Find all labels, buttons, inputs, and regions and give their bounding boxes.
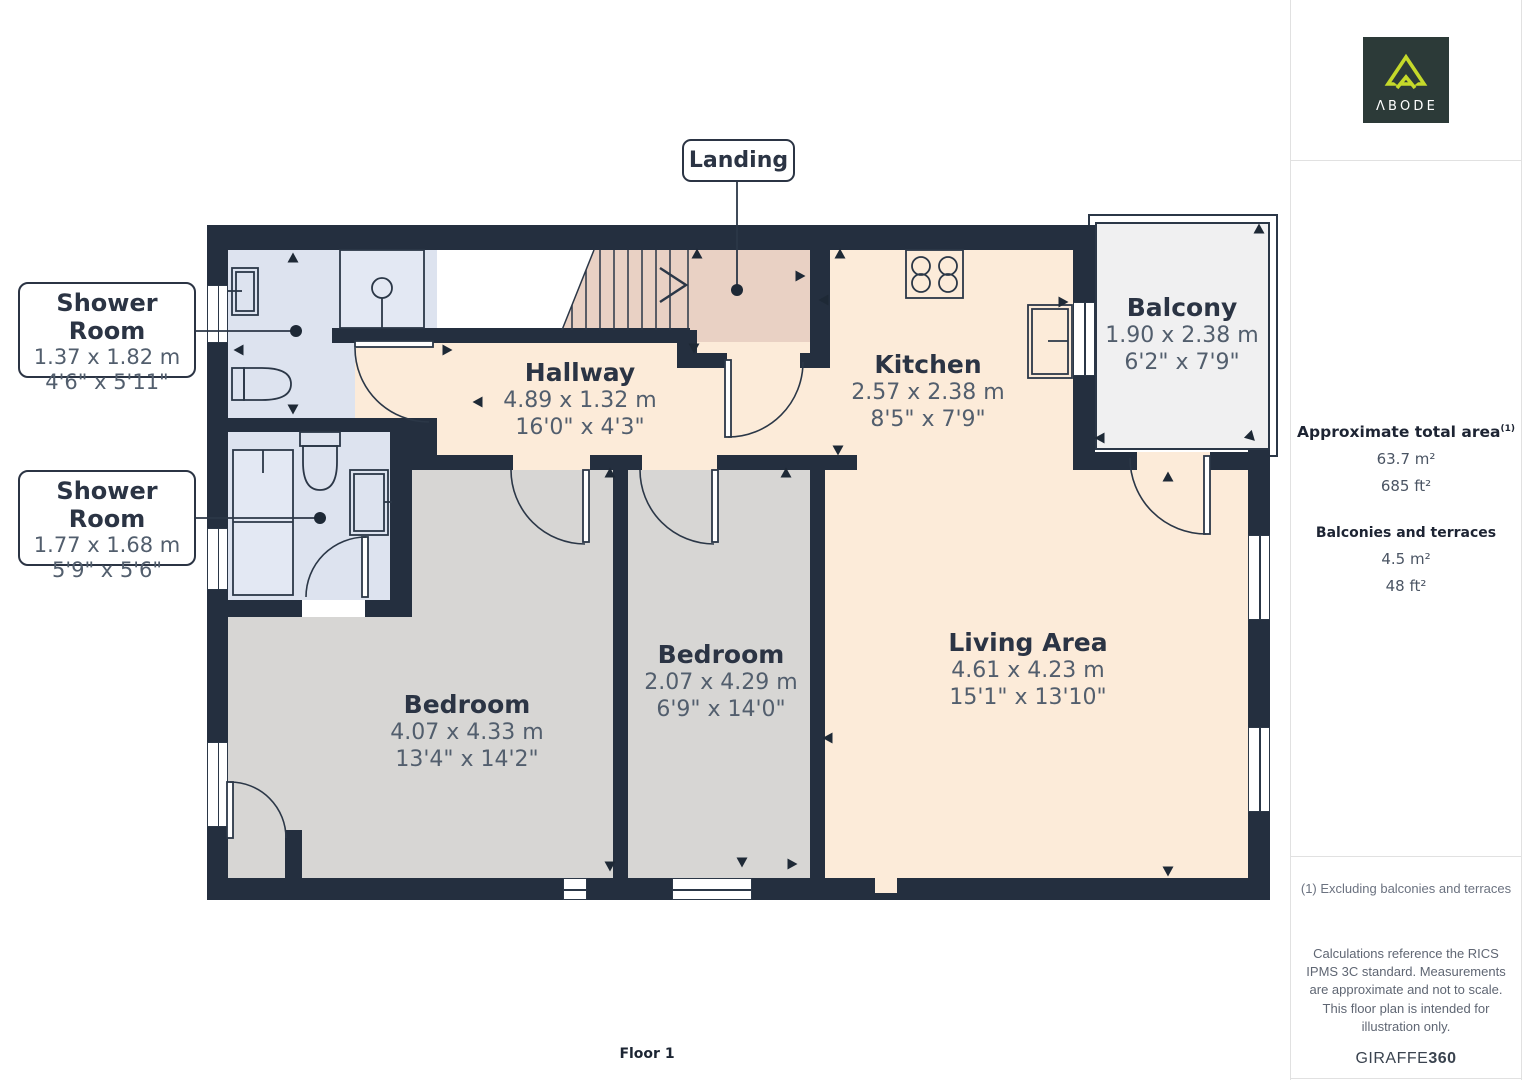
label-bedroom-2: Bedroom 2.07 x 4.29 m 6'9" x 14'0" xyxy=(644,640,797,724)
toilet-icon xyxy=(303,446,337,490)
logo-section: ΛBODE xyxy=(1291,0,1521,161)
room-size-metric: 2.07 x 4.29 m xyxy=(644,670,797,697)
door-leaf xyxy=(725,360,731,437)
door-leaf xyxy=(712,470,718,542)
disclaimer-section: Calculations reference the RICS IPMS 3C … xyxy=(1291,919,1521,1079)
door-leaf xyxy=(1204,456,1210,534)
door-arc xyxy=(306,537,366,597)
bathroom-fixtures xyxy=(228,250,424,400)
balconies-imperial: 48 ft² xyxy=(1291,577,1521,595)
room-name: Living Area xyxy=(948,628,1107,658)
room-size-imperial: 6'9" x 14'0" xyxy=(644,697,797,724)
door-leaf xyxy=(583,470,589,542)
giraffe360-suffix: 360 xyxy=(1428,1050,1456,1067)
toilet-icon xyxy=(244,368,291,400)
stairs xyxy=(562,250,688,330)
stairs-direction-chevron xyxy=(660,268,686,302)
abode-logo-wordmark: ΛBODE xyxy=(1376,99,1438,114)
label-hallway: Hallway 4.89 x 1.32 m 16'0" x 4'3" xyxy=(503,358,656,442)
room-size-metric: 2.57 x 2.38 m xyxy=(851,380,1004,407)
area-summary-section: Approximate total area(1) 63.7 m² 685 ft… xyxy=(1291,161,1521,856)
room-size-metric: 1.37 x 1.82 m xyxy=(20,345,194,370)
room-name: Bedroom xyxy=(644,640,797,670)
door-arc xyxy=(230,782,286,838)
label-bedroom-1: Bedroom 4.07 x 4.33 m 13'4" x 14'2" xyxy=(390,690,543,774)
room-size-metric: 1.77 x 1.68 m xyxy=(20,533,194,558)
disclaimer-text: Calculations reference the RICS IPMS 3C … xyxy=(1304,945,1508,1036)
total-area-imperial: 685 ft² xyxy=(1291,477,1521,495)
leader-dot xyxy=(731,284,743,296)
balconies-heading: Balconies and terraces xyxy=(1291,525,1521,541)
room-size-metric: 4.89 x 1.32 m xyxy=(503,388,656,415)
sink-icon xyxy=(350,470,388,535)
leader-dot xyxy=(314,512,326,524)
room-size-imperial: 5'9" x 5'6" xyxy=(20,558,194,583)
total-area-metric: 63.7 m² xyxy=(1291,450,1521,468)
room-name: Balcony xyxy=(1105,293,1258,323)
room-name: Kitchen xyxy=(851,350,1004,380)
label-living-area: Living Area 4.61 x 4.23 m 15'1" x 13'10" xyxy=(948,628,1107,712)
room-name: Shower Room xyxy=(20,290,194,345)
door-arc xyxy=(1130,458,1206,534)
giraffe360-brand: GIRAFFE360 xyxy=(1304,1050,1508,1068)
room-name: Shower Room xyxy=(20,478,194,533)
door-arc xyxy=(728,362,803,437)
footnote-marker: (1) xyxy=(1500,424,1515,434)
floor-number-label: Floor 1 xyxy=(619,1046,674,1062)
door-arc xyxy=(640,470,714,544)
callout-shower-room-2: Shower Room 1.77 x 1.68 m 5'9" x 5'6" xyxy=(18,470,196,566)
balconies-metric: 4.5 m² xyxy=(1291,550,1521,568)
footnote-section: (1) Excluding balconies and terraces xyxy=(1291,856,1521,919)
leader-dot xyxy=(290,325,302,337)
abode-logo-icon: ΛBODE xyxy=(1363,37,1449,123)
giraffe360-name: GIRAFFE xyxy=(1355,1050,1428,1067)
total-area-heading: Approximate total area(1) xyxy=(1291,423,1521,441)
door-arc xyxy=(511,470,585,544)
room-size-imperial: 15'1" x 13'10" xyxy=(948,685,1107,712)
door-leaf xyxy=(362,537,368,597)
room-size-metric: 1.90 x 2.38 m xyxy=(1105,323,1258,350)
info-sidebar: ΛBODE Approximate total area(1) 63.7 m² … xyxy=(1290,0,1522,1080)
sink-icon xyxy=(354,474,384,531)
floorplan-canvas: Landing Shower Room 1.37 x 1.82 m 4'6" x… xyxy=(0,0,1290,1080)
floorplan-page: Landing Shower Room 1.37 x 1.82 m 4'6" x… xyxy=(0,0,1527,1080)
room-size-imperial: 8'5" x 7'9" xyxy=(851,407,1004,434)
room-size-metric: 4.07 x 4.33 m xyxy=(390,720,543,747)
landing-label-text: Landing xyxy=(689,148,788,173)
toilet-icon xyxy=(300,432,340,446)
room-name: Hallway xyxy=(503,358,656,388)
callout-shower-room-1: Shower Room 1.37 x 1.82 m 4'6" x 5'11" xyxy=(18,282,196,378)
label-kitchen: Kitchen 2.57 x 2.38 m 8'5" x 7'9" xyxy=(851,350,1004,434)
door-leaf xyxy=(355,341,433,347)
room-name: Bedroom xyxy=(390,690,543,720)
footnote-text: (1) Excluding balconies and terraces xyxy=(1301,881,1511,896)
room-size-imperial: 13'4" x 14'2" xyxy=(390,747,543,774)
door-leaf xyxy=(227,782,233,838)
toilet-icon xyxy=(232,368,244,400)
room-size-imperial: 6'2" x 7'9" xyxy=(1105,350,1258,377)
door-arc xyxy=(355,348,429,422)
total-area-heading-text: Approximate total area xyxy=(1297,423,1500,441)
label-balcony: Balcony 1.90 x 2.38 m 6'2" x 7'9" xyxy=(1105,293,1258,377)
room-size-imperial: 4'6" x 5'11" xyxy=(20,370,194,395)
room-size-metric: 4.61 x 4.23 m xyxy=(948,658,1107,685)
landing-label: Landing xyxy=(682,139,795,182)
room-size-imperial: 16'0" x 4'3" xyxy=(503,415,656,442)
hob-icon xyxy=(906,250,963,298)
